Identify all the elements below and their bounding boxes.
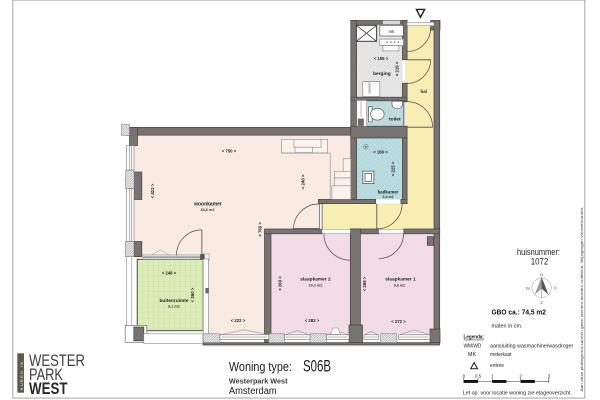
svg-text:0,5: 0,5 (475, 374, 482, 379)
svg-text:9,6 m2: 9,6 m2 (394, 284, 405, 288)
svg-text:aansluiting wasmachine/wasdrog: aansluiting wasmachine/wasdroger (490, 344, 574, 350)
svg-text:< 225 >: < 225 > (391, 161, 396, 176)
svg-text:< 222 >: < 222 > (231, 318, 246, 323)
svg-text:N: N (540, 273, 544, 279)
svg-text:WM/WD: WM/WD (368, 82, 372, 94)
svg-text:< 272 >: < 272 > (391, 319, 406, 324)
svg-text:< 248 >: < 248 > (162, 271, 177, 276)
svg-text:GBO ca.: 74,5 m2: GBO ca.: 74,5 m2 (492, 307, 547, 316)
svg-text:woonkamer: woonkamer (193, 202, 222, 208)
svg-text:6,1 m2: 6,1 m2 (168, 305, 179, 309)
svg-text:HUREN IN: HUREN IN (19, 361, 24, 391)
svg-text:< 260 >: < 260 > (190, 287, 195, 302)
svg-text:< 260 >: < 260 > (278, 276, 283, 291)
svg-text:S06B: S06B (303, 356, 331, 375)
svg-text:< 155 >: < 155 > (374, 56, 389, 61)
svg-text:WEST: WEST (29, 379, 68, 398)
svg-text:entree: entree (490, 363, 504, 369)
svg-text:< 240 >: < 240 > (301, 174, 306, 189)
svg-text:< 750 >: < 750 > (222, 149, 237, 154)
svg-text:WM/WD: WM/WD (464, 344, 482, 350)
svg-text:hal: hal (421, 89, 427, 94)
svg-text:< 288 >: < 288 > (362, 276, 367, 291)
svg-text:Amsterdam: Amsterdam (229, 386, 277, 397)
svg-text:3,4 m2: 3,4 m2 (383, 195, 394, 199)
svg-text:10,1 m2: 10,1 m2 (309, 284, 323, 288)
svg-text:< 166 >: < 166 > (373, 149, 388, 154)
svg-text:mk: mk (388, 29, 395, 34)
svg-text:< 765 >: < 765 > (258, 222, 263, 237)
svg-text:badkamer: badkamer (378, 190, 399, 195)
svg-text:Legenda:: Legenda: (464, 335, 485, 341)
svg-text:Z: Z (540, 300, 543, 306)
svg-text:< 219 >: < 219 > (395, 61, 400, 76)
svg-text:1072: 1072 (531, 257, 549, 268)
svg-text:Aan deze plattegrond kunnen ge: Aan deze plattegrond kunnen geen rechten… (580, 207, 584, 392)
svg-text:Woning type:: Woning type: (229, 359, 292, 374)
svg-text:W: W (526, 286, 531, 292)
svg-text:toilet: toilet (389, 117, 401, 123)
svg-text:< 423 >: < 423 > (150, 183, 155, 198)
svg-text:meterkast: meterkast (490, 352, 512, 358)
svg-text:slaapkamer 2: slaapkamer 2 (300, 277, 331, 283)
svg-text:maten in cm.: maten in cm. (492, 324, 523, 330)
svg-text:MK: MK (468, 352, 477, 358)
svg-text:Let op: voor locatie woning: Let op: voor locatie woning zie etageove… (463, 391, 572, 397)
svg-text:O: O (553, 286, 557, 292)
svg-text:34,6 m2: 34,6 m2 (201, 208, 215, 212)
svg-text:slaapkamer 1: slaapkamer 1 (385, 277, 416, 283)
svg-text:buitenruimte: buitenruimte (159, 298, 188, 304)
svg-text:Westerpark West: Westerpark West (229, 377, 288, 386)
svg-text:< 283 >: < 283 > (305, 318, 320, 323)
svg-text:berging: berging (373, 71, 391, 77)
